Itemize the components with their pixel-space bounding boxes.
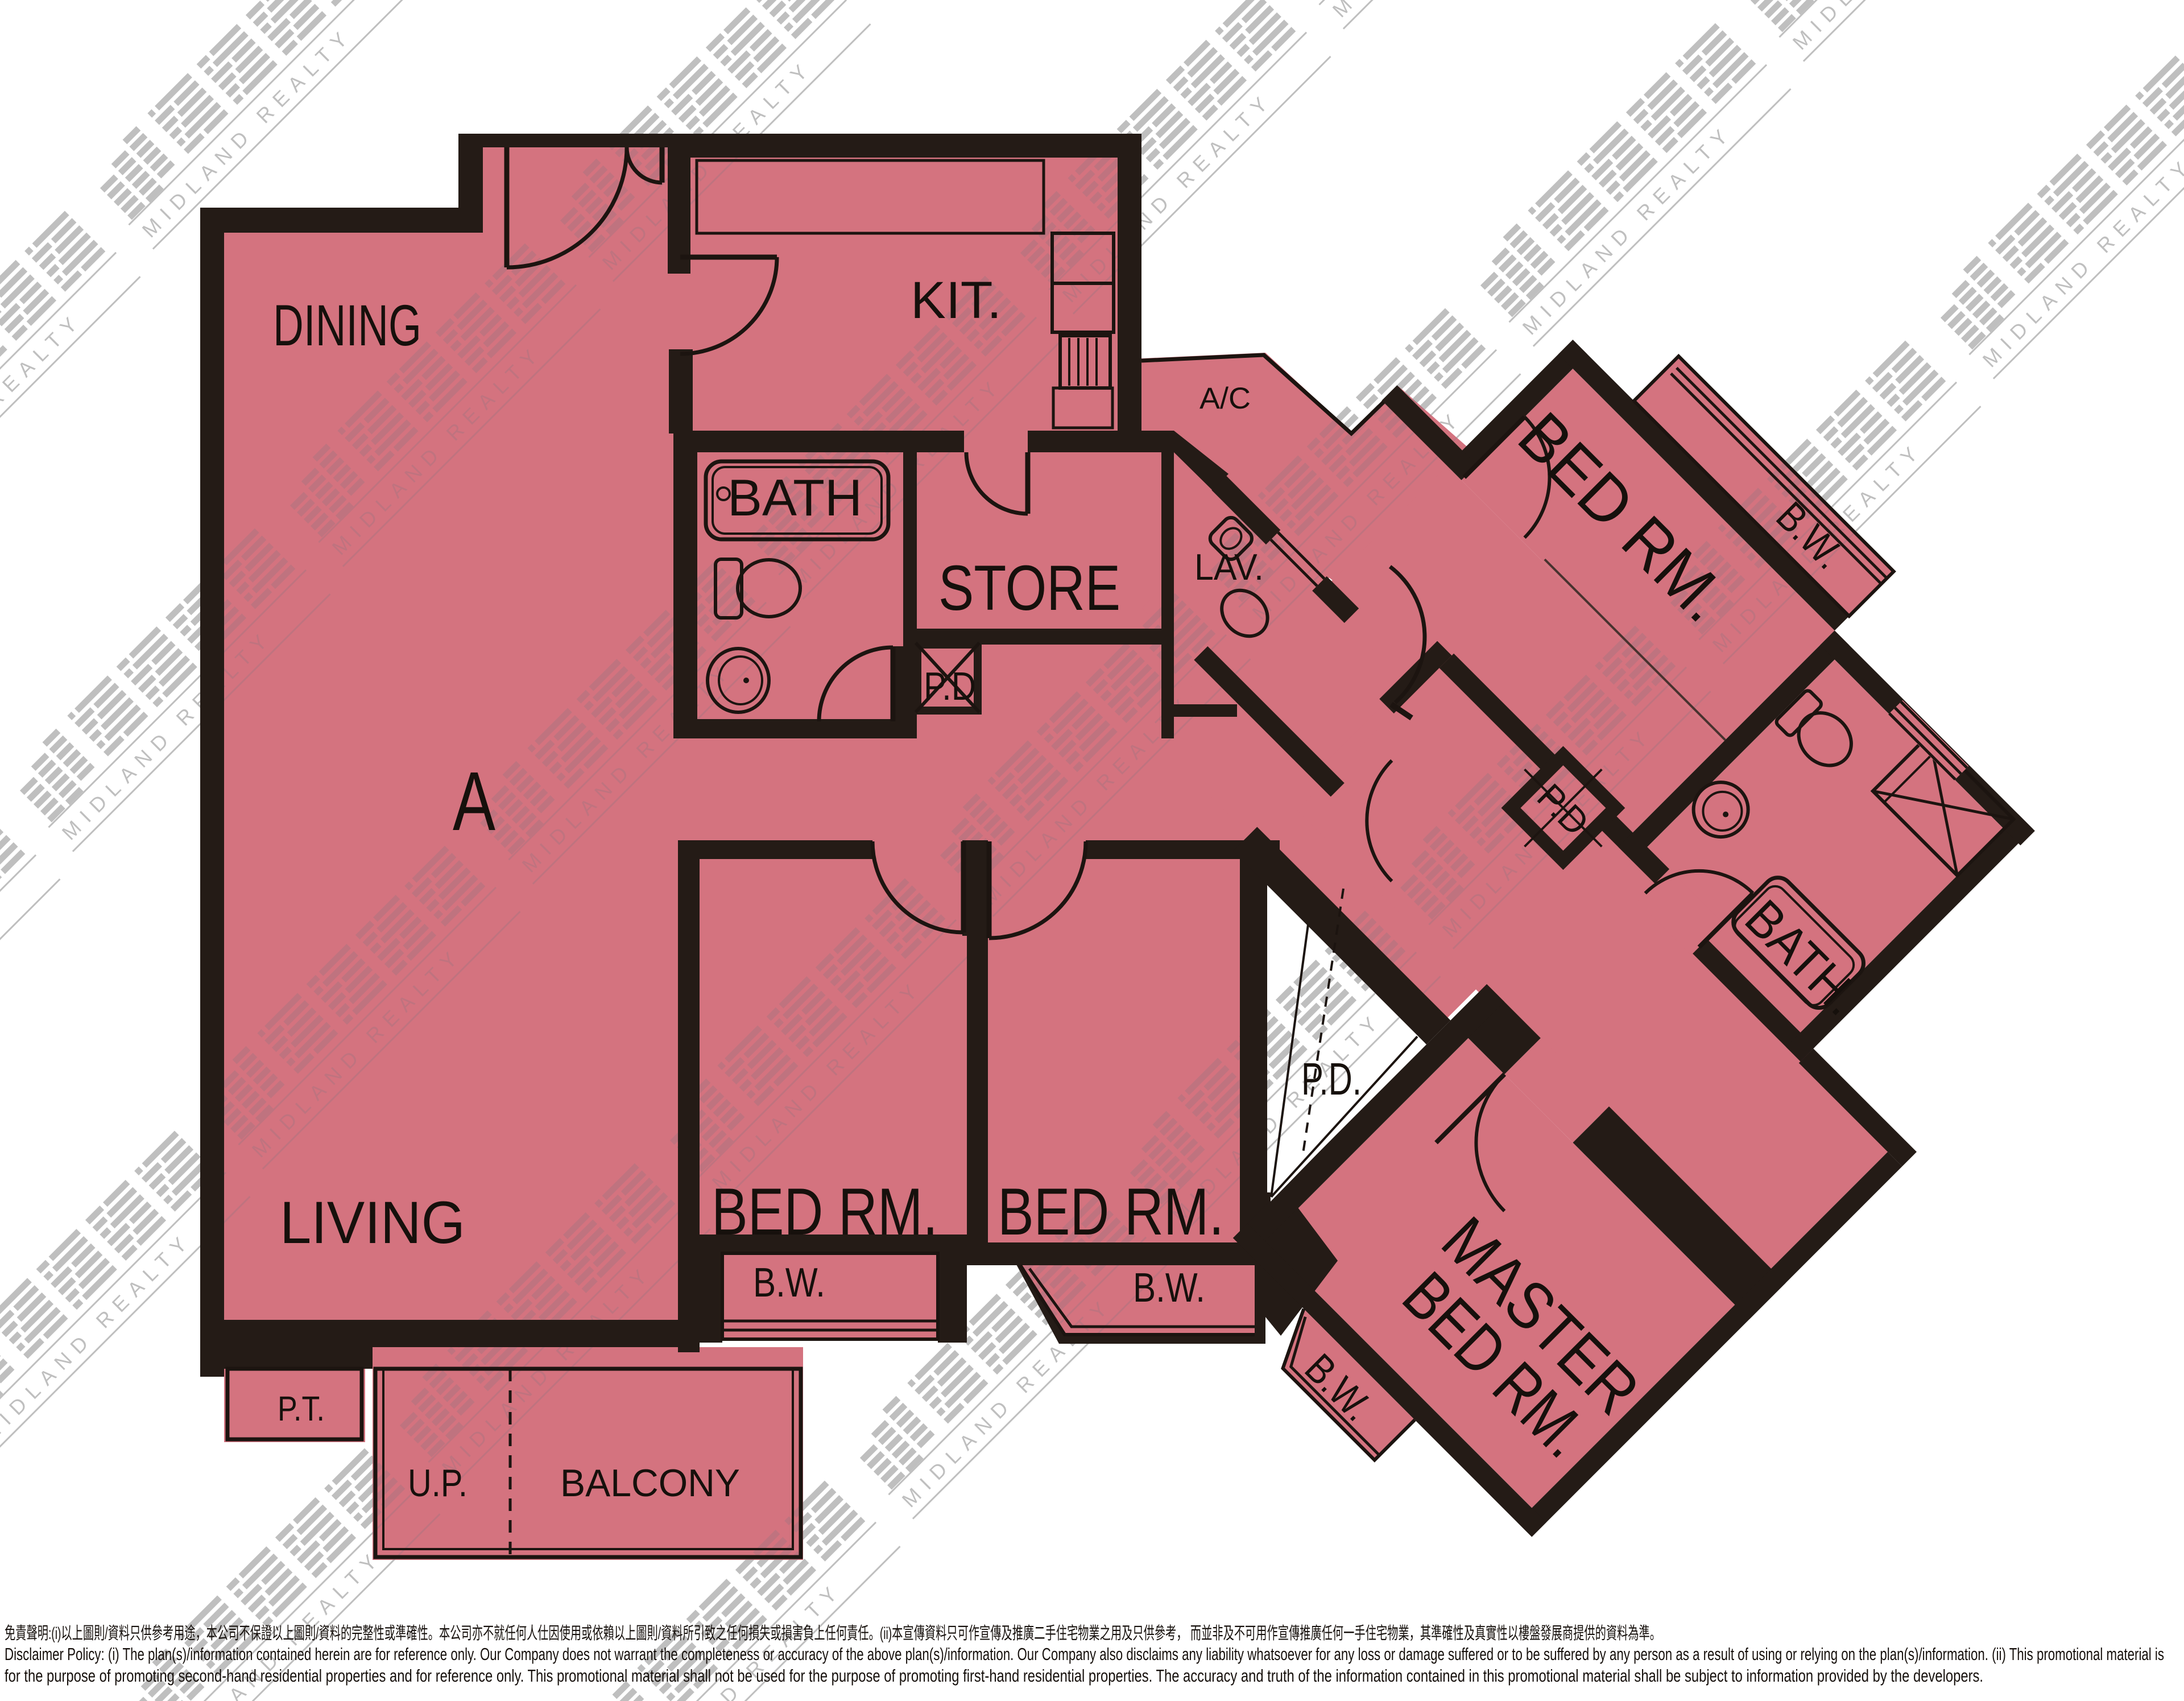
svg-text:DINING: DINING: [273, 293, 421, 358]
svg-text:B.W.: B.W.: [753, 1260, 825, 1306]
svg-text:P.D: P.D: [924, 664, 976, 708]
svg-text:LIVING: LIVING: [280, 1190, 465, 1256]
svg-text:A: A: [453, 755, 495, 848]
svg-text:A/C: A/C: [1199, 382, 1251, 415]
svg-text:BED RM.: BED RM.: [712, 1174, 938, 1249]
svg-text:P.T.: P.T.: [278, 1389, 325, 1428]
svg-text:免責聲明:(i)以上圖則/資料只供參考用途，本公司不保證以上: 免責聲明:(i)以上圖則/資料只供參考用途，本公司不保證以上圖則/資料的完整性或…: [5, 1624, 1661, 1643]
svg-text:STORE: STORE: [938, 552, 1120, 624]
svg-text:for the purpose of promoting s: for the purpose of promoting second-hand…: [5, 1666, 1983, 1686]
svg-text:Disclaimer Policy: (i) The pla: Disclaimer Policy: (i) The plan(s)/infor…: [5, 1644, 2164, 1664]
svg-text:BALCONY: BALCONY: [560, 1461, 740, 1505]
